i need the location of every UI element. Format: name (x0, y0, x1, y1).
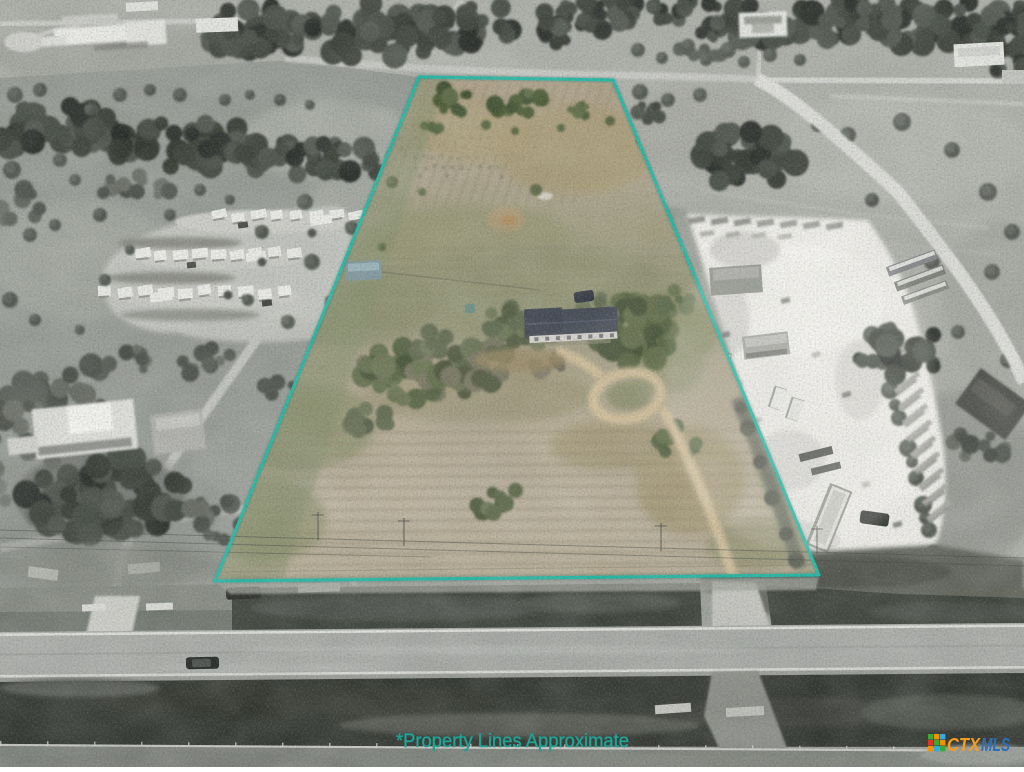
svg-text:CTX: CTX (947, 734, 981, 755)
svg-text:*Property Lines Approximate: *Property Lines Approximate (396, 730, 629, 752)
svg-text:MLS: MLS (981, 734, 1010, 755)
